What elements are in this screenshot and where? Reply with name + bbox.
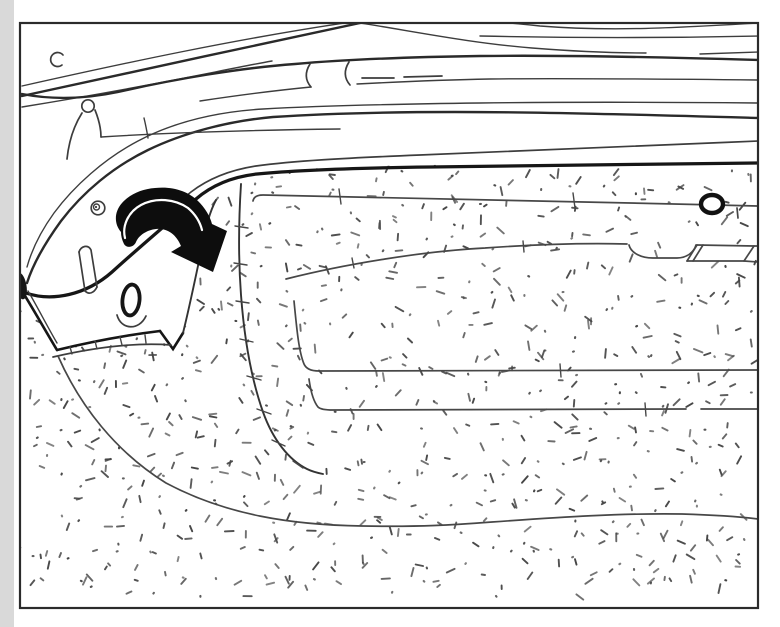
trunk-trim-illustration — [0, 0, 780, 627]
oval-grommet — [701, 195, 723, 213]
illustration-canvas — [0, 0, 780, 627]
page-edge-shade — [0, 0, 14, 627]
grommet-tick — [737, 208, 738, 218]
trim-oval-hole — [121, 284, 141, 317]
